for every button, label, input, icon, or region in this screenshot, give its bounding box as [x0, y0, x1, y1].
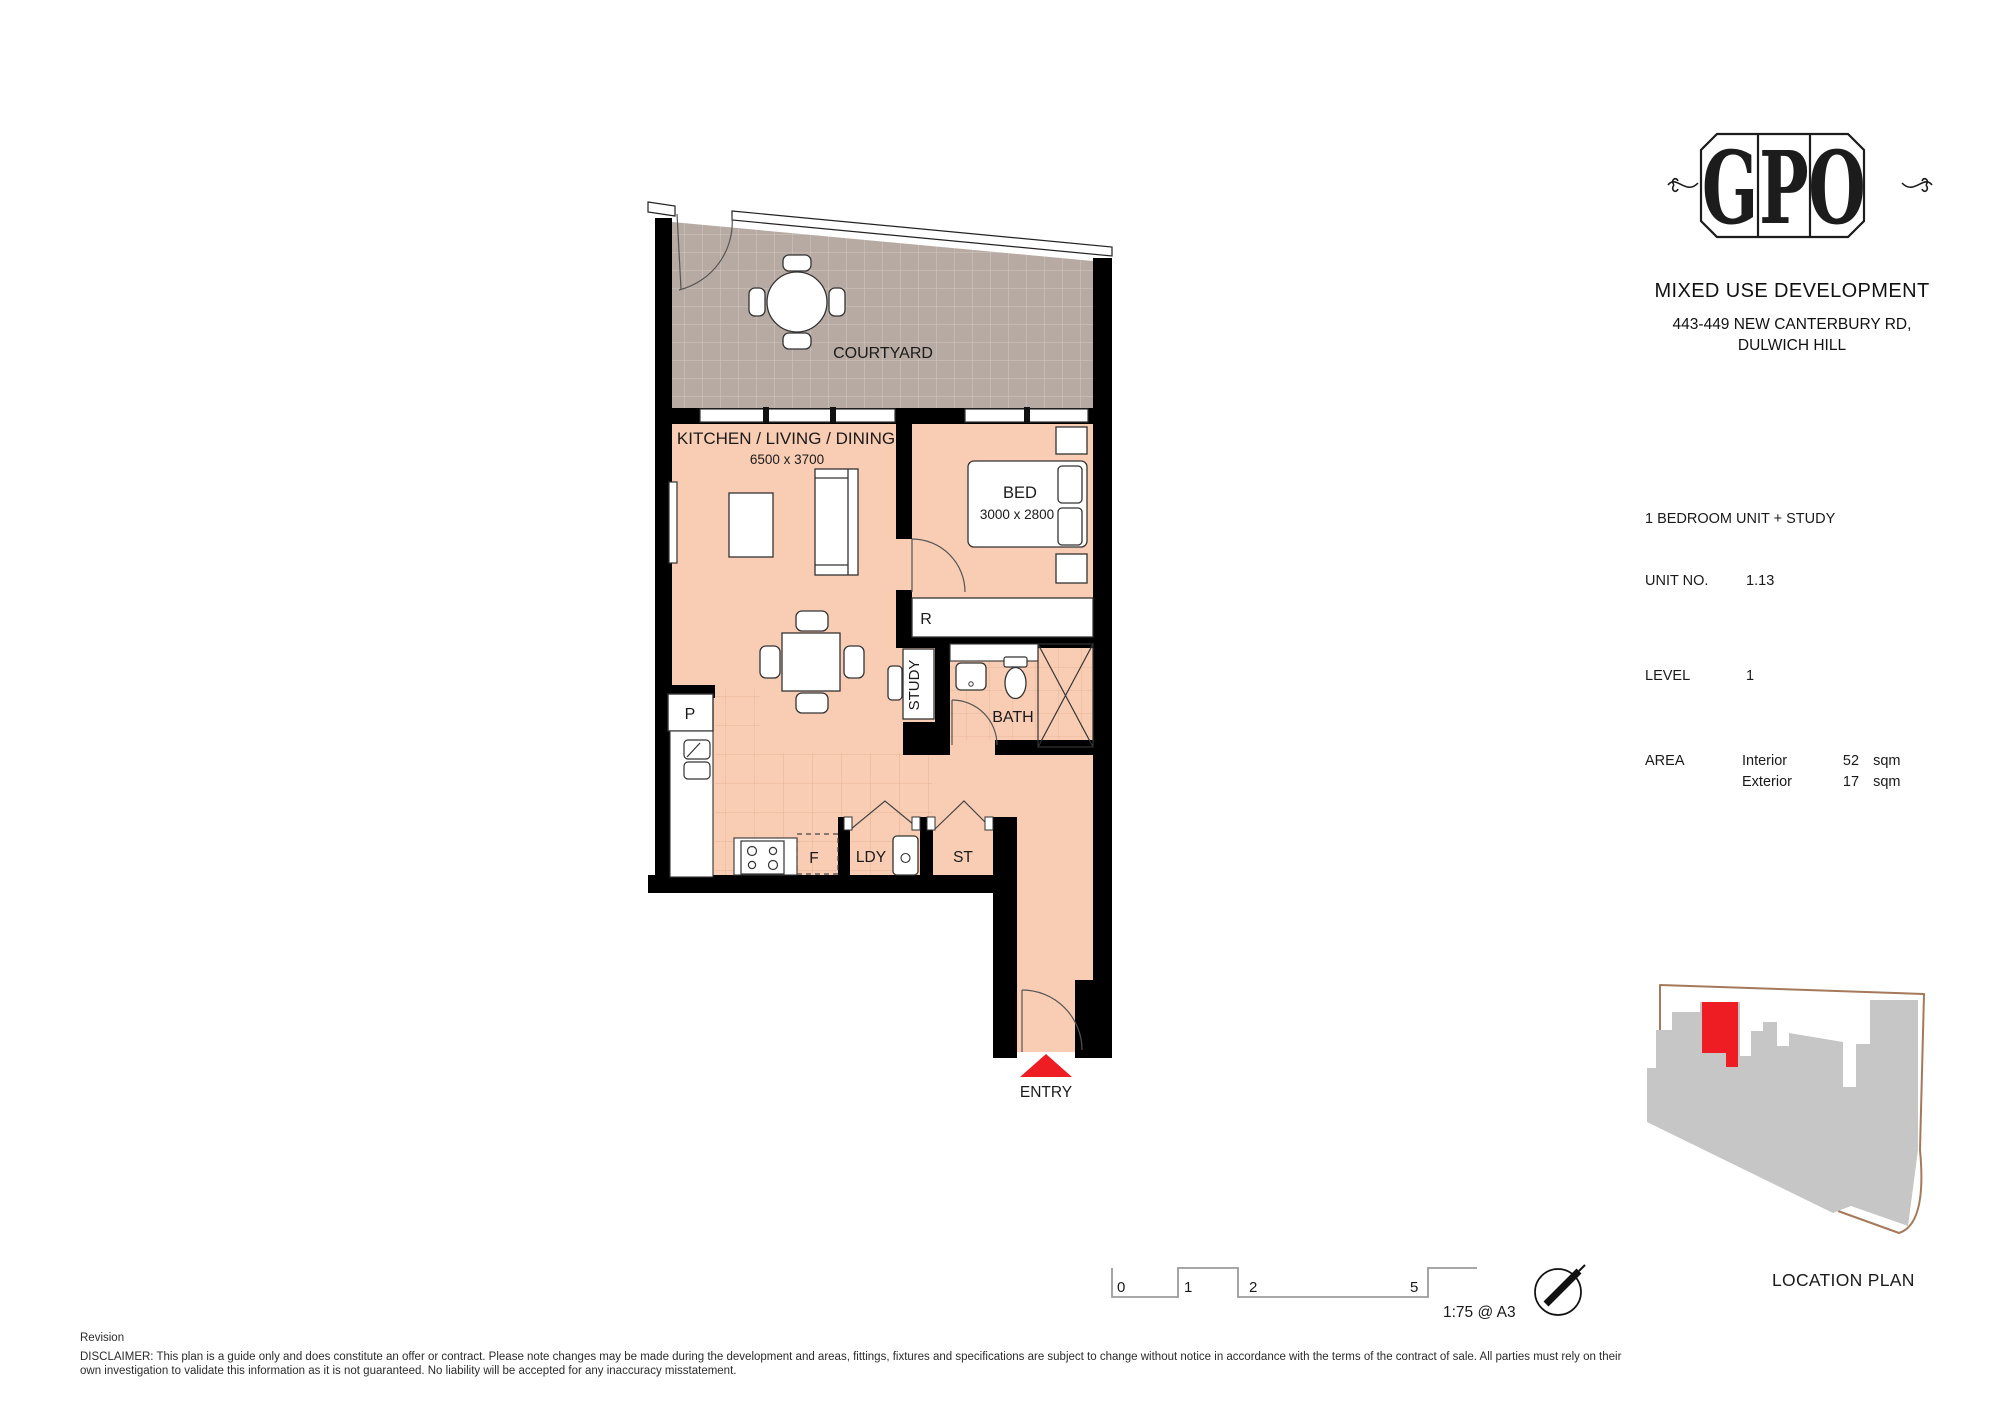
level-label: LEVEL [1645, 668, 1742, 684]
sofa-icon [815, 469, 858, 575]
project-address: 443-449 NEW CANTERBURY RD, DULWICH HILL [1640, 314, 1944, 356]
room-label-study: STUDY [906, 660, 923, 711]
logo-letter-o: O [1808, 129, 1866, 247]
address-line-2: DULWICH HILL [1640, 335, 1944, 356]
room-label-store: ST [953, 849, 973, 866]
area-interior-unit: sqm [1873, 753, 1900, 769]
robe-box [912, 598, 1093, 637]
side-window [669, 482, 677, 563]
scale-tick-5: 5 [1410, 1279, 1418, 1296]
location-plan-label: LOCATION PLAN [1772, 1270, 1915, 1291]
unit-no-row: UNIT NO. 1.13 [1645, 573, 1774, 589]
floor-plan-drawing: COURTYARD KITCHEN / LIVING / DINING 6500… [600, 150, 1160, 1120]
stove-icon [741, 841, 784, 874]
toilet-icon [1004, 657, 1027, 667]
entry-label: ENTRY [1020, 1084, 1072, 1101]
room-label-pantry: P [685, 706, 696, 723]
north-arrow-icon [1535, 1265, 1585, 1315]
wardrobe-icon [1056, 427, 1087, 454]
kitchen-sink-icon [684, 740, 710, 779]
scale-bar: 0 1 2 5 1:75 @ A3 [1095, 1250, 1605, 1335]
room-label-fridge: F [809, 850, 818, 867]
level-row: LEVEL 1 [1645, 668, 1754, 684]
pillow-icon [1058, 508, 1082, 545]
logo-letter-p: P [1759, 129, 1809, 247]
address-line-1: 443-449 NEW CANTERBURY RD, [1640, 314, 1944, 335]
unit-no-value: 1.13 [1746, 573, 1774, 589]
revision-label: Revision [80, 1332, 124, 1344]
pillow-icon [1058, 466, 1082, 503]
scale-text: 1:75 @ A3 [1443, 1304, 1516, 1321]
area-interior-label: Interior [1742, 753, 1822, 769]
entry-arrow-icon [1020, 1054, 1072, 1077]
coffee-table-icon [729, 493, 773, 557]
location-plan [1630, 960, 1970, 1260]
unit-type: 1 BEDROOM UNIT + STUDY [1645, 511, 1835, 527]
scale-tick-2: 2 [1249, 1279, 1257, 1296]
courtyard-floor [672, 222, 1093, 408]
area-interior-value: 52 [1826, 753, 1859, 769]
area-exterior-unit: sqm [1873, 774, 1900, 790]
area-exterior-value: 17 [1826, 774, 1859, 790]
building-footprint [1647, 1000, 1918, 1226]
floor-plan-sheet: COURTYARD KITCHEN / LIVING / DINING 6500… [0, 0, 2000, 1414]
disclaimer-line-1: DISCLAIMER: This plan is a guide only an… [80, 1351, 1621, 1363]
logo-letter-g: G [1702, 129, 1758, 247]
room-label-robe: R [920, 611, 932, 628]
disclaimer-line-2: own investigation to validate this infor… [80, 1365, 736, 1377]
area-interior-row: Interior 52 sqm [1742, 753, 1900, 769]
room-dims-bed: 3000 x 2800 [980, 507, 1054, 522]
unit-no-label: UNIT NO. [1645, 573, 1742, 589]
area-label: AREA [1645, 753, 1685, 769]
room-label-laundry: LDY [856, 849, 886, 866]
area-exterior-row: Exterior 17 sqm [1742, 774, 1900, 790]
level-value: 1 [1746, 668, 1754, 684]
gpo-logo: G P O [1660, 120, 1940, 250]
room-label-bath: BATH [992, 709, 1033, 726]
room-label-bed: BED [1003, 484, 1037, 502]
scale-tick-1: 1 [1184, 1279, 1192, 1296]
scale-bar-line [1112, 1268, 1477, 1297]
scale-tick-0: 0 [1117, 1279, 1125, 1296]
project-title: MIXED USE DEVELOPMENT [1640, 280, 1944, 303]
wardrobe-icon [1056, 554, 1087, 583]
area-exterior-label: Exterior [1742, 774, 1822, 790]
room-label-courtyard: COURTYARD [833, 345, 933, 362]
laundry-tub-icon [893, 836, 918, 875]
room-label-kitchen-living-dining: KITCHEN / LIVING / DINING [677, 429, 895, 448]
room-dims-kitchen: 6500 x 3700 [750, 452, 824, 467]
